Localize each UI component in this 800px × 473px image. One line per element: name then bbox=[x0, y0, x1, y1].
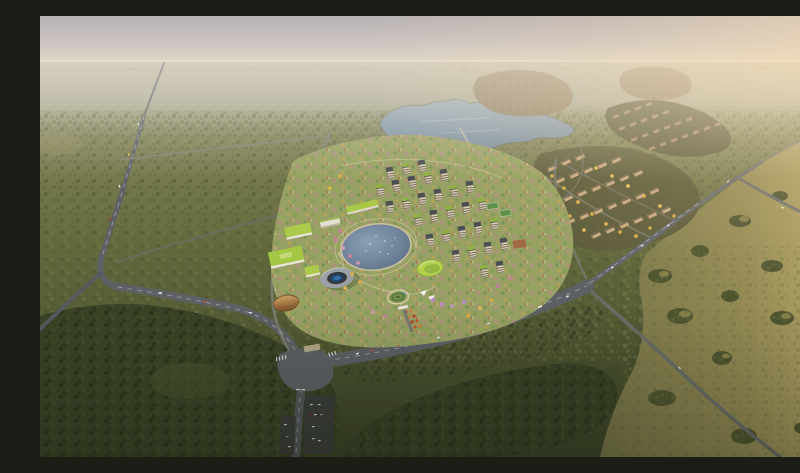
vignette bbox=[40, 16, 800, 457]
aerial-rendering: Bird's-eye architectural rendering, hazy… bbox=[40, 16, 800, 457]
